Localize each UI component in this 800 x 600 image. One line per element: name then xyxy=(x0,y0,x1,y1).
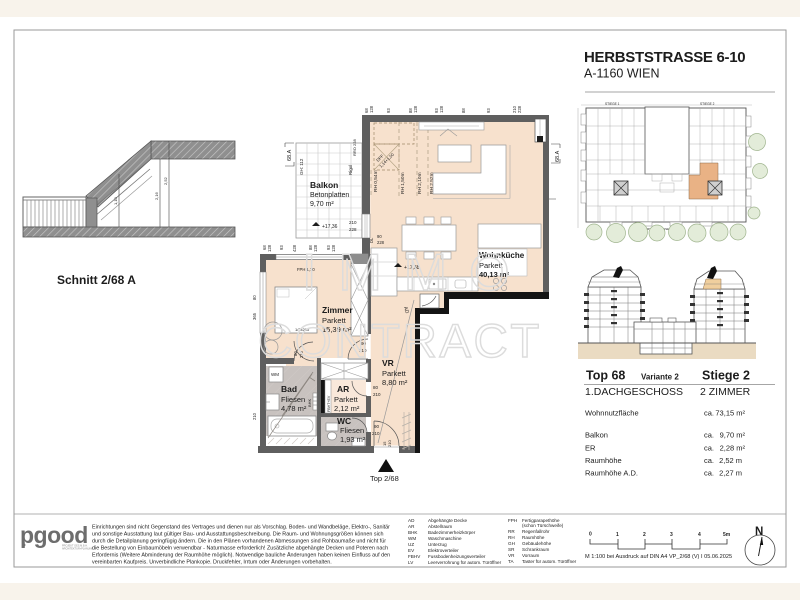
svg-text:365: 365 xyxy=(252,312,257,320)
svg-text:Bad: Bad xyxy=(281,384,297,394)
svg-text:428: 428 xyxy=(292,244,297,252)
svg-text:die Bestellung von Einbaumöbel: die Bestellung von Einbaumöbeln verwendb… xyxy=(92,546,388,552)
svg-text:0: 0 xyxy=(589,532,592,538)
svg-text:4,78 m²: 4,78 m² xyxy=(281,404,307,413)
svg-text:Top 68: Top 68 xyxy=(586,369,625,383)
svg-text:80: 80 xyxy=(252,295,257,300)
svg-text:(schon Türschweife): (schon Türschweife) xyxy=(522,523,564,528)
svg-text:ER: ER xyxy=(585,444,596,453)
svg-text:M 1:100 bei Ausdruck auf DIN A: M 1:100 bei Ausdruck auf DIN A4 VP_2/68 … xyxy=(585,554,732,560)
svg-text:HERBSTSTRASSE 6-10: HERBSTSTRASSE 6-10 xyxy=(584,49,745,66)
svg-text:FPH: FPH xyxy=(508,518,517,523)
svg-text:Abgehängte Decke: Abgehängte Decke xyxy=(428,518,468,523)
svg-text:1,93 m²: 1,93 m² xyxy=(340,435,366,444)
svg-text:RH 2,10m: RH 2,10m xyxy=(417,172,423,194)
svg-text:Fussbodenheizungsverteiler: Fussbodenheizungsverteiler xyxy=(428,554,486,559)
svg-text:128: 128 xyxy=(267,244,272,252)
svg-text:Zimmer: Zimmer xyxy=(322,305,353,315)
svg-text:N: N xyxy=(755,526,763,538)
svg-text:AR: AR xyxy=(408,524,415,529)
svg-text:210: 210 xyxy=(373,392,381,397)
svg-text:Leerverrohrung für autom. Türö: Leerverrohrung für autom. Türöffner xyxy=(428,560,502,565)
svg-text:128: 128 xyxy=(439,105,444,113)
svg-text:FBHT+EV: FBHT+EV xyxy=(327,395,331,412)
svg-text:Abstellraum: Abstellraum xyxy=(428,524,452,529)
svg-text:228: 228 xyxy=(349,227,357,232)
svg-text:Parkett: Parkett xyxy=(334,395,359,404)
svg-text:DL: DL xyxy=(369,237,374,243)
svg-text:ca.: ca. xyxy=(704,431,714,440)
svg-text:Raumhöhe A.D.: Raumhöhe A.D. xyxy=(585,469,638,478)
svg-text:GH: 112: GH: 112 xyxy=(299,158,304,175)
svg-text:1.DACHGESCHOSS: 1.DACHGESCHOSS xyxy=(585,386,683,398)
svg-text:Schnitt 2/68 A: Schnitt 2/68 A xyxy=(57,273,136,287)
svg-text:WC: WC xyxy=(337,416,351,426)
svg-text:EV: EV xyxy=(408,548,415,553)
svg-text:93: 93 xyxy=(486,108,491,113)
svg-text:GH: GH xyxy=(508,541,515,546)
svg-text:68.A: 68.A xyxy=(287,149,293,161)
svg-text:Wohnnutzfläche: Wohnnutzfläche xyxy=(585,409,639,418)
svg-text:2,27 m: 2,27 m xyxy=(719,469,742,478)
svg-text:2: 2 xyxy=(643,532,646,538)
svg-text:2,16: 2,16 xyxy=(154,191,159,200)
svg-text:9,70 m²: 9,70 m² xyxy=(310,201,334,208)
svg-text:Taster für autom. Türöffner: Taster für autom. Türöffner xyxy=(522,559,577,564)
svg-text:90: 90 xyxy=(377,234,382,239)
svg-text:9,70 m²: 9,70 m² xyxy=(720,431,746,440)
svg-text:und sonstige Ausstattung laut: und sonstige Ausstattung laut gültiger B… xyxy=(92,532,383,538)
svg-text:ca.: ca. xyxy=(704,409,714,418)
svg-text:1,10: 1,10 xyxy=(113,196,118,205)
svg-text:2,28 m²: 2,28 m² xyxy=(720,444,746,453)
svg-text:AD: AD xyxy=(408,518,415,523)
svg-text:Raumhöhe: Raumhöhe xyxy=(522,535,545,540)
svg-text:Variante 2: Variante 2 xyxy=(641,373,679,382)
svg-text:90: 90 xyxy=(374,424,380,429)
svg-text:Parkett: Parkett xyxy=(382,369,407,378)
svg-text:SR: SR xyxy=(508,547,515,552)
svg-text:Erfordernis (Weitere Abminderu: Erfordernis (Weitere Abminderung der Rau… xyxy=(92,552,390,559)
svg-text:210: 210 xyxy=(252,412,257,420)
svg-text:Elektroverteiler: Elektroverteiler xyxy=(428,548,459,553)
svg-text:2 ZIMMER: 2 ZIMMER xyxy=(700,386,751,398)
svg-text:4: 4 xyxy=(698,532,701,538)
svg-text:Fliesen: Fliesen xyxy=(340,426,364,435)
svg-text:93: 93 xyxy=(279,245,284,250)
svg-text:2,52 m: 2,52 m xyxy=(719,456,742,465)
svg-text:Regenfallrohr: Regenfallrohr xyxy=(522,529,550,534)
svg-text:UZ: UZ xyxy=(408,542,414,547)
svg-text:5m: 5m xyxy=(723,532,731,538)
svg-text:3: 3 xyxy=(670,532,673,538)
svg-text:AR: AR xyxy=(337,384,349,394)
svg-text:Top 2/68: Top 2/68 xyxy=(370,474,399,483)
svg-text:Rigol: Rigol xyxy=(348,165,353,175)
svg-text:ca.: ca. xyxy=(704,444,714,453)
svg-text:BHK: BHK xyxy=(307,398,312,407)
svg-text:128: 128 xyxy=(413,105,418,113)
svg-text:Einrichtungen sind nicht Gegen: Einrichtungen sind nicht Gegenstand des … xyxy=(92,525,390,531)
svg-text:A-1160 WIEN: A-1160 WIEN xyxy=(584,67,660,81)
svg-text:88: 88 xyxy=(461,108,466,113)
svg-text:WM: WM xyxy=(271,372,279,377)
svg-text:STIEGE 1: STIEGE 1 xyxy=(605,102,620,106)
svg-text:RRO 228: RRO 228 xyxy=(352,139,357,156)
svg-text:Stiege 2: Stiege 2 xyxy=(702,369,750,383)
svg-text:128: 128 xyxy=(369,105,374,113)
svg-text:228: 228 xyxy=(517,105,522,113)
svg-text:Unterzug: Unterzug xyxy=(428,542,447,547)
svg-text:CONTRACT: CONTRACT xyxy=(258,315,542,368)
svg-text:210: 210 xyxy=(349,220,357,225)
svg-text:1: 1 xyxy=(616,532,619,538)
svg-text:80: 80 xyxy=(373,385,379,390)
svg-text:FBHV: FBHV xyxy=(408,554,421,559)
svg-text:RH: RH xyxy=(508,535,515,540)
svg-text:+17,36: +17,36 xyxy=(322,224,338,230)
svg-text:STIEGE 2: STIEGE 2 xyxy=(700,102,715,106)
svg-text:ca.: ca. xyxy=(704,456,714,465)
svg-text:210: 210 xyxy=(387,440,392,447)
svg-text:Raumhöhe: Raumhöhe xyxy=(585,456,622,465)
svg-text:Waschmaschine: Waschmaschine xyxy=(428,536,462,541)
svg-text:Fliesen: Fliesen xyxy=(281,395,305,404)
svg-text:8,80 m²: 8,80 m² xyxy=(382,378,408,387)
svg-text:RR: RR xyxy=(508,529,515,534)
svg-text:durch die Detailplanung gering: durch die Detailplanung geringfügig ände… xyxy=(92,539,386,545)
svg-text:VR: VR xyxy=(508,553,515,558)
svg-text:IMMO: IMMO xyxy=(302,244,532,302)
svg-text:ca.: ca. xyxy=(704,469,714,478)
svg-text:93: 93 xyxy=(386,108,391,113)
svg-text:vereinbarten Kaufpreis. Unverb: vereinbarten Kaufpreis. Unverbindliche P… xyxy=(92,559,332,566)
svg-text:Balkon: Balkon xyxy=(585,431,608,440)
svg-text:Betonplatten: Betonplatten xyxy=(310,192,349,199)
svg-text:ARCHITEKTUR+PLANUNG: ARCHITEKTUR+PLANUNG xyxy=(62,548,93,551)
svg-text:WM: WM xyxy=(408,536,416,541)
svg-text:RH 0,54m: RH 0,54m xyxy=(373,170,379,192)
svg-text:BHK: BHK xyxy=(408,530,418,535)
svg-text:210: 210 xyxy=(372,431,380,436)
svg-text:Vorraum: Vorraum xyxy=(522,553,540,558)
svg-text:Badezimmerheizkörper: Badezimmerheizkörper xyxy=(428,530,476,535)
svg-text:Balkon: Balkon xyxy=(310,180,338,190)
svg-text:RH 1,50m: RH 1,50m xyxy=(400,172,406,194)
svg-text:TA: TA xyxy=(508,559,514,564)
svg-text:Gebäudehöhe: Gebäudehöhe xyxy=(522,541,552,546)
svg-text:2,52: 2,52 xyxy=(163,176,168,185)
svg-text:73,15 m²: 73,15 m² xyxy=(715,409,745,418)
svg-text:Schrankraum: Schrankraum xyxy=(522,547,549,552)
svg-text:2,12 m²: 2,12 m² xyxy=(334,404,360,413)
